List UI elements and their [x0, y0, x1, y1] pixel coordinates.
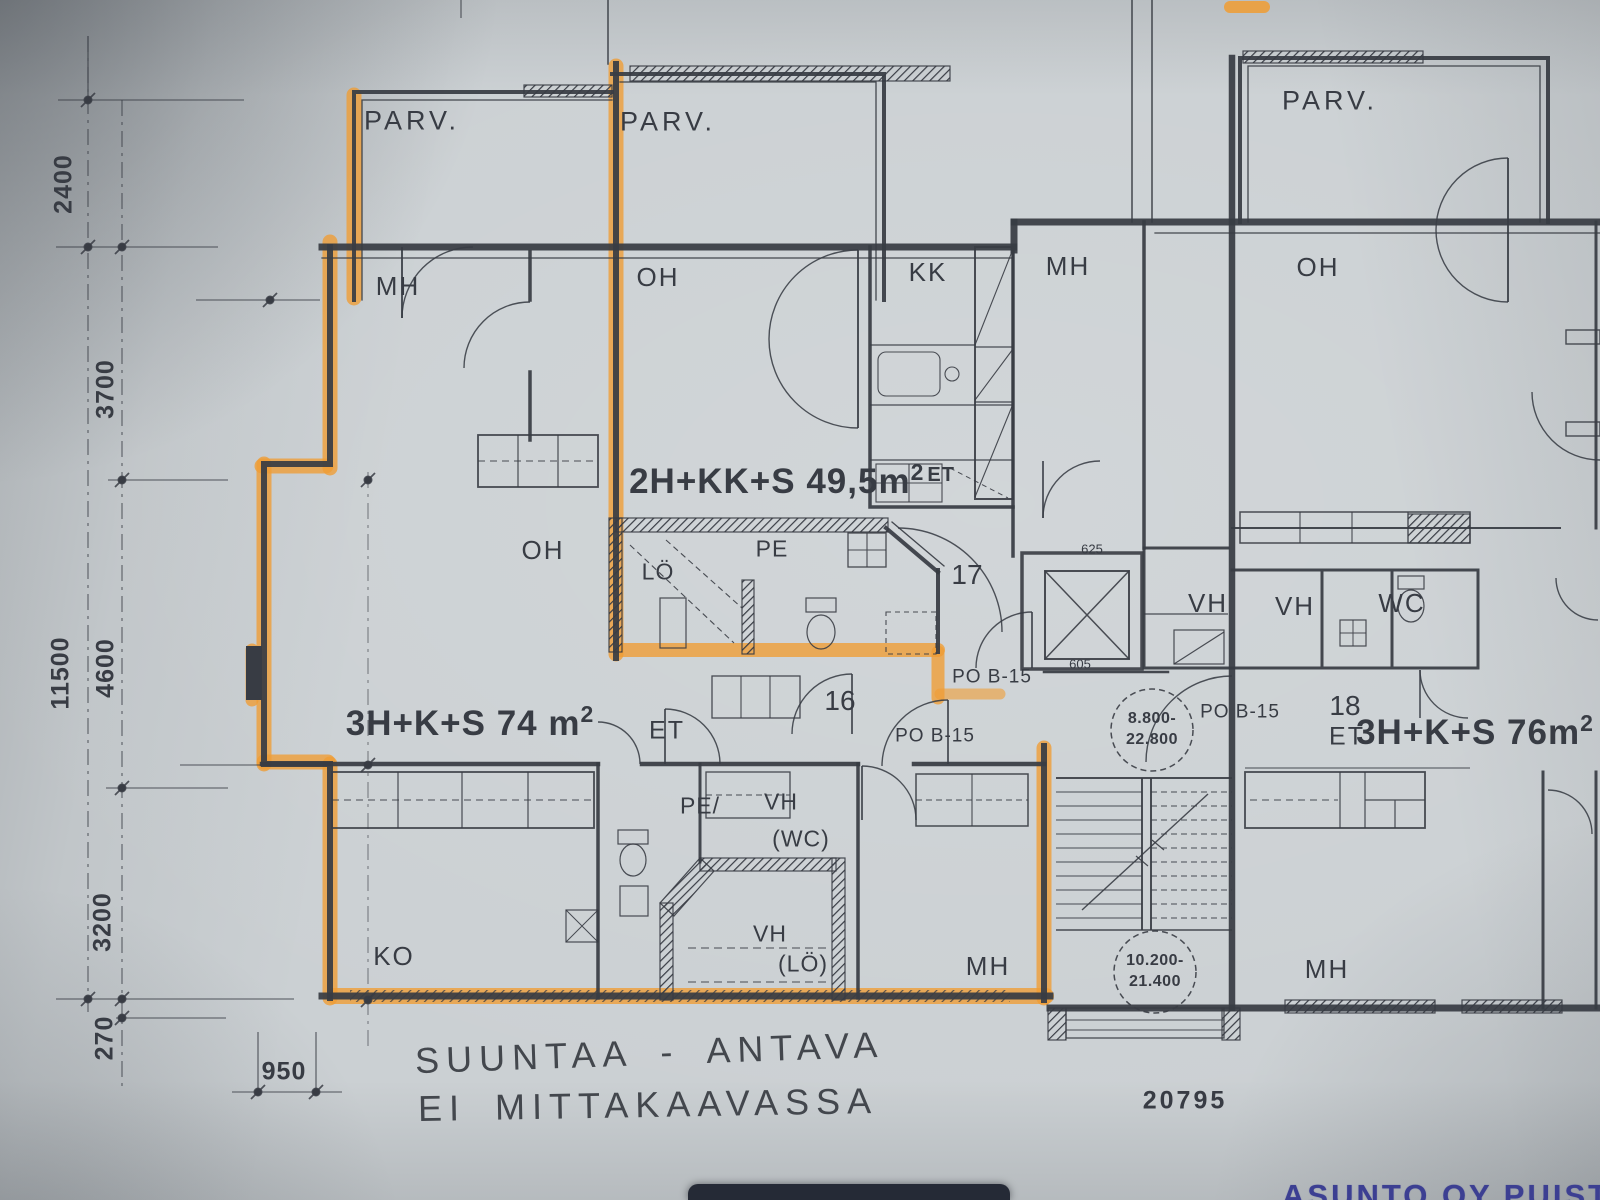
dimension-2400: 2400: [52, 154, 77, 214]
dimension-4600: 4600: [94, 638, 119, 698]
room-label-vh-lo-sub: (LÖ): [778, 953, 828, 976]
dimension-11500: 11500: [49, 636, 74, 709]
room-label-wc: WC: [1378, 590, 1425, 616]
balcony-label-left: PARV.: [364, 108, 460, 135]
room-label-oh-top-right: OH: [1297, 254, 1340, 280]
apartment-label-74: 3H+K+S 74 m2: [346, 703, 595, 741]
fire-door-rating-3: PO B-15: [1200, 703, 1280, 722]
fire-door-rating-1: PO B-15: [952, 668, 1032, 687]
room-label-pe-lower: PE/: [680, 795, 720, 818]
apartment-49-5-sup: 2: [911, 459, 925, 485]
plan-number: 20795: [1143, 1089, 1228, 1114]
apartment-number-17: 17: [951, 561, 982, 589]
room-label-mh-lower-right: MH: [1305, 956, 1349, 982]
room-label-oh-top-left: OH: [637, 264, 680, 290]
photo-dark-edge: [688, 1184, 1010, 1200]
dimension-3200: 3200: [91, 892, 116, 952]
apartment-76-sup: 2: [1580, 710, 1594, 736]
room-label-pe: PE: [756, 538, 789, 561]
highlighter-marks: [252, 7, 1264, 998]
company-stamp: ASUNTO OY PUISTO: [1282, 1178, 1600, 1200]
balcony-label-middle: PARV.: [620, 109, 716, 136]
room-label-oh-left: OH: [522, 537, 565, 563]
apartment-label-49-5: 2H+KK+S 49,5m2ET: [629, 461, 955, 499]
room-label-mh-top-left: MH: [376, 273, 420, 299]
room-label-vh-wc: VH: [764, 791, 798, 814]
dimension-3700: 3700: [94, 359, 119, 419]
level-lower-line2: 21.400: [1126, 972, 1184, 993]
staircase: [1056, 778, 1232, 1038]
room-label-vh-right: VH: [1275, 593, 1315, 619]
level-upper-line2: 22.800: [1126, 730, 1178, 751]
entry-label-apt16: ET: [649, 719, 685, 744]
apartment-76-text: 3H+K+S 76m: [1356, 713, 1580, 752]
handwritten-note-line2: EI MITTAKAAVASSA: [418, 1080, 879, 1130]
room-label-vh-wc-sub: (WC): [772, 828, 830, 851]
balcony-label-right: PARV.: [1282, 88, 1378, 115]
level-marker-lower: 10.200- 21.400: [1126, 951, 1184, 993]
level-lower-line1: 10.200-: [1126, 951, 1184, 972]
apartment-number-16: 16: [824, 687, 855, 715]
level-marker-upper: 8.800- 22.800: [1126, 709, 1178, 751]
apartment-49-5-et: ET: [927, 464, 955, 486]
floor-plan-photo: PARV. PARV. PARV. MH OH KK MH OH OH LÖ P…: [0, 0, 1600, 1200]
floor-plan-drawing: [0, 0, 1600, 1200]
fire-door-rating-2: PO B-15: [895, 727, 975, 746]
apartment-label-76: 3H+K+S 76m2: [1356, 712, 1594, 750]
room-label-mh-top-mid: MH: [1046, 253, 1090, 279]
room-label-ko: KO: [373, 943, 415, 969]
room-label-mh-lower-mid: MH: [966, 953, 1010, 979]
apartment-49-5-text: 2H+KK+S 49,5m: [629, 462, 910, 501]
dimension-270: 270: [93, 1016, 118, 1061]
apartment-74-sup: 2: [580, 701, 594, 727]
level-upper-line1: 8.800-: [1126, 709, 1178, 730]
walls: [246, 0, 1600, 1008]
dimension-625: 625: [1081, 543, 1103, 556]
room-label-vh-lo: VH: [753, 923, 787, 946]
room-label-kk: KK: [909, 259, 948, 285]
room-label-lo: LÖ: [642, 561, 675, 584]
dimension-605: 605: [1069, 658, 1091, 671]
apartment-74-text: 3H+K+S 74 m: [346, 704, 581, 743]
dimension-950: 950: [262, 1060, 307, 1085]
room-label-vh-mid: VH: [1188, 590, 1228, 616]
